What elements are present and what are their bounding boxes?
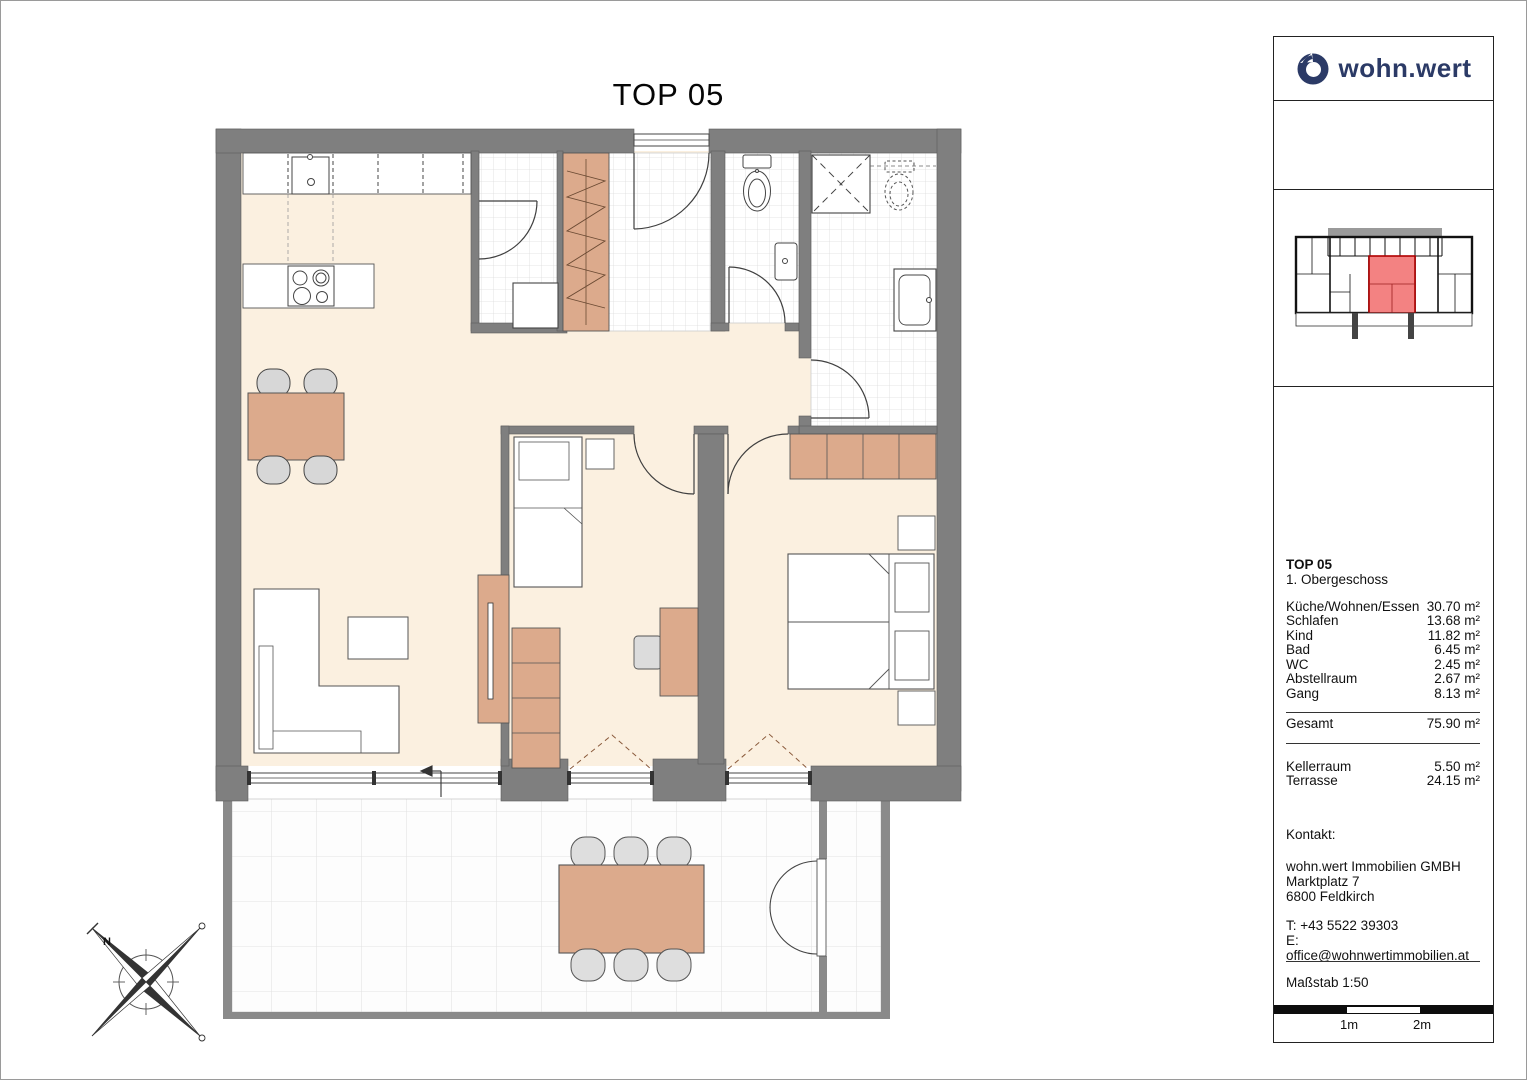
contact-heading: Kontakt: [1286,827,1480,842]
terrace-chairs-bottom [571,949,691,981]
kids-side-table [586,439,614,469]
scale-bar [1274,1005,1493,1014]
compass-north-label: N [103,936,111,948]
unit-info-section: TOP 05 1. Obergeschoss Küche/Wohnen/Esse… [1274,387,1493,1042]
wc-cistern [743,155,771,168]
unit-floor: 1. Obergeschoss [1286,572,1480,587]
divider [1286,712,1480,713]
key-plan-section [1274,190,1493,387]
bedroom-wardrobe [790,434,936,479]
contact-city: 6800 Feldkirch [1286,889,1480,904]
room-row: Gang8.13 m² [1286,686,1480,701]
washing-machine [513,283,558,328]
desk [660,608,698,696]
contact-street: Marktplatz 7 [1286,874,1480,889]
dining-table [248,393,344,460]
terrace [223,791,890,1019]
nightstand-bottom [898,691,935,725]
room-row: Bad6.45 m² [1286,642,1480,657]
room-row: Kind11.82 m² [1286,628,1480,643]
scale-mark-2m: 2m [1405,1017,1439,1032]
extra-row: Terrasse24.15 m² [1286,773,1480,788]
sidebar: wohn.wert [1273,36,1494,1043]
divider [1286,743,1480,744]
kitchen-counter [243,153,471,194]
divider [1286,961,1480,962]
room-row: WC2.45 m² [1286,657,1480,672]
tv-sideboard [478,575,509,723]
coffee-table [348,617,408,659]
sidebar-empty-section [1274,101,1493,190]
kids-wardrobe [512,628,560,768]
desk-chair [634,636,662,669]
contact-email: E: office@wohnwertimmobilien.at [1286,933,1480,963]
terrace-table [559,865,704,953]
floorplan-page: TOP 05 N [0,0,1527,1080]
entry-wardrobe [563,153,609,331]
logo-icon [1295,51,1331,87]
compass-rose: N [83,919,209,1045]
contact-phone: T: +43 5522 39303 [1286,918,1480,933]
unit-title: TOP 05 [1286,557,1480,572]
key-plan [1292,226,1476,350]
bathtub [894,269,936,331]
contact-company: wohn.wert Immobilien GMBH [1286,859,1480,874]
extra-row: Kellerraum5.50 m² [1286,759,1480,774]
room-row: Abstellraum2.67 m² [1286,671,1480,686]
logo: wohn.wert [1274,37,1493,101]
scale-label: Maßstab 1:50 [1286,975,1480,990]
terrace-chairs [571,837,691,869]
room-row: Küche/Wohnen/Essen30.70 m² [1286,599,1480,614]
scale-bar-segment [1347,1007,1420,1013]
tv [488,603,493,699]
scale-mark-1m: 1m [1332,1017,1366,1032]
total-row: Gesamt75.90 m² [1286,716,1480,731]
plan-title: TOP 05 [566,77,771,113]
bedroom [788,434,936,725]
kitchen-sink [292,155,329,195]
logo-text: wohn.wert [1338,53,1471,84]
nightstand-top [898,516,935,550]
room-row: Schlafen13.68 m² [1286,613,1480,628]
